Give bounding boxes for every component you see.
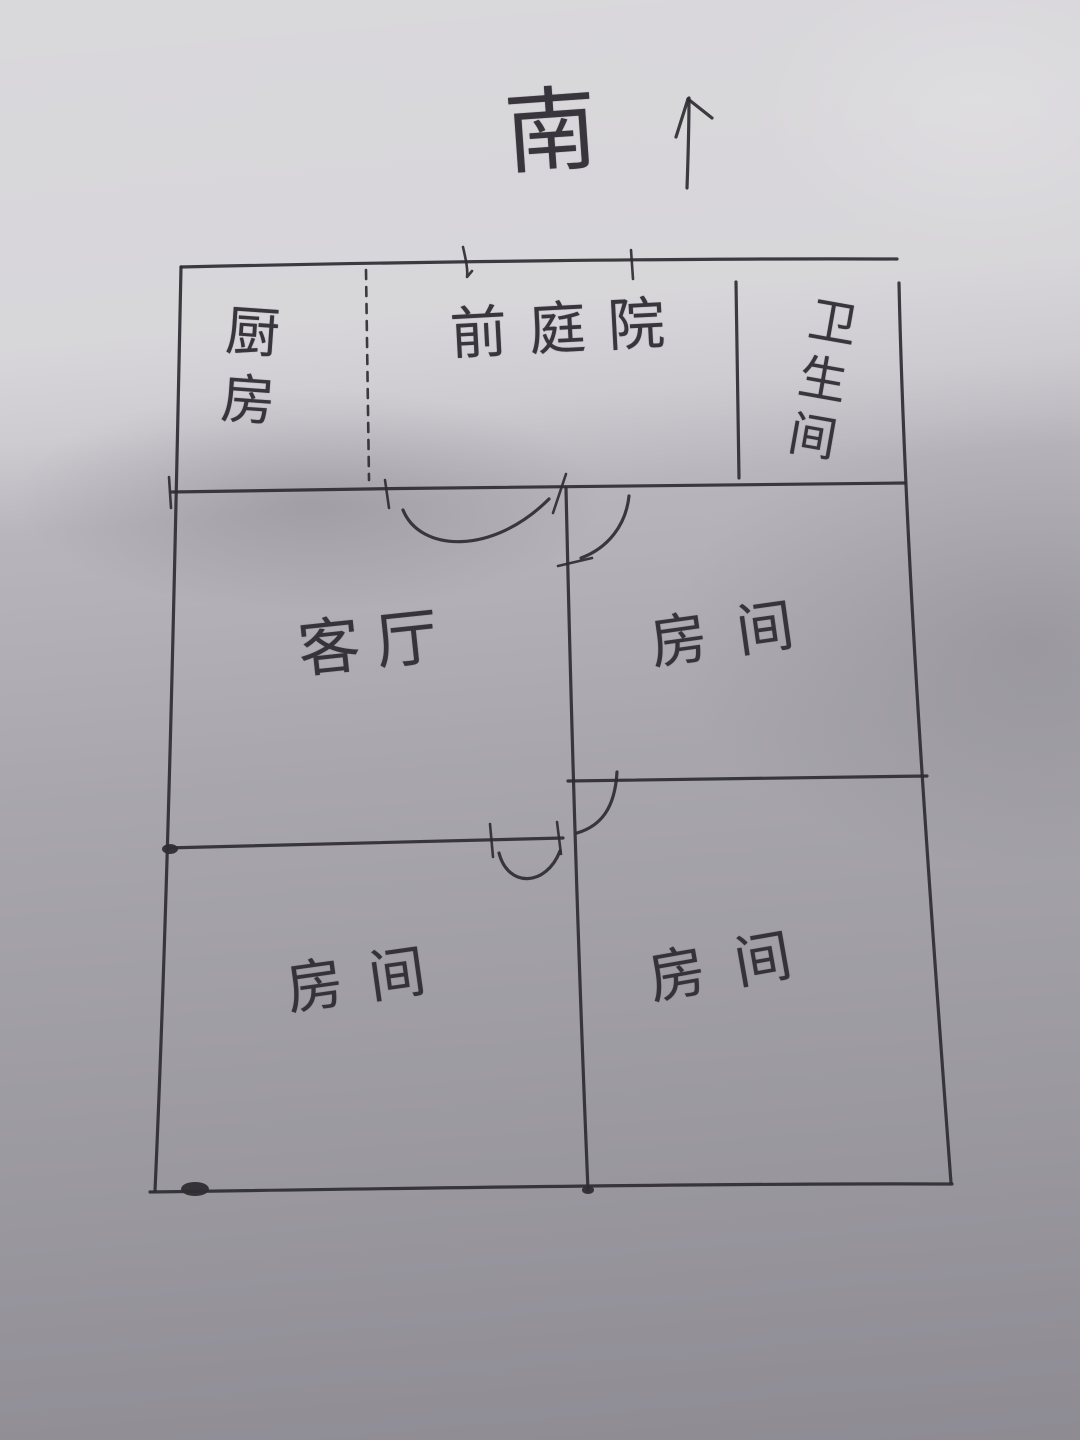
room-label-kitchen: 厨房 — [211, 301, 277, 441]
paper-floorplan-photo: 南 厨房 前庭院 卫生间 客厅 房间 房间 房间 — [0, 0, 1080, 1440]
bedroom-ne-door-arc — [581, 496, 629, 558]
living-room-door-arc — [403, 499, 549, 542]
kitchen-dashed-partition — [366, 270, 369, 480]
bedroom-sw-door-arc — [499, 851, 560, 879]
compass-arrow-icon — [676, 98, 712, 188]
ink-blobs — [162, 844, 594, 1196]
bathroom-partition — [736, 282, 739, 478]
floor-plan-drawing — [0, 0, 1080, 1440]
room-label-front-courtyard: 前庭院 — [449, 294, 689, 366]
door-arcs — [403, 496, 629, 879]
room-label-living-room: 客厅 — [295, 602, 457, 683]
compass-south-label: 南 — [502, 81, 601, 184]
